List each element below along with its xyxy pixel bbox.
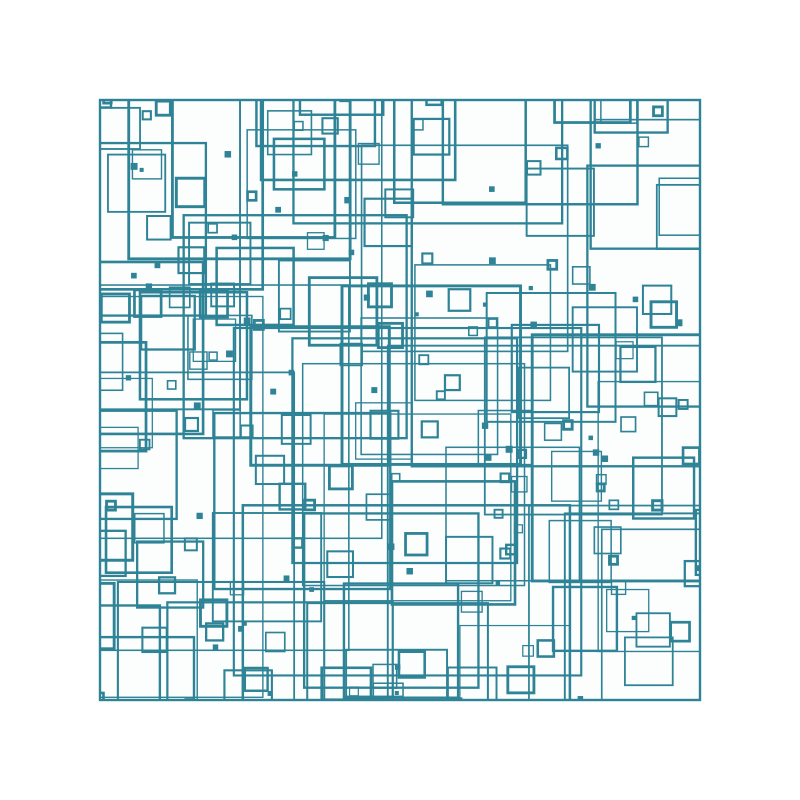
square bbox=[242, 621, 247, 626]
square bbox=[126, 375, 131, 380]
square bbox=[213, 644, 218, 649]
square bbox=[270, 389, 276, 395]
square bbox=[371, 387, 377, 393]
square bbox=[489, 186, 495, 192]
generative-artwork-canvas bbox=[0, 0, 800, 800]
square bbox=[292, 171, 297, 176]
square bbox=[588, 436, 593, 441]
square bbox=[426, 291, 433, 298]
square bbox=[197, 513, 203, 519]
square bbox=[140, 168, 144, 172]
square bbox=[530, 322, 536, 328]
square bbox=[131, 163, 138, 170]
art-stage bbox=[0, 0, 800, 800]
square bbox=[284, 575, 290, 581]
square bbox=[415, 312, 419, 316]
square bbox=[593, 449, 599, 455]
square bbox=[602, 455, 608, 461]
square bbox=[406, 568, 412, 574]
square bbox=[238, 626, 244, 632]
square bbox=[632, 616, 636, 620]
square bbox=[529, 286, 533, 290]
square bbox=[275, 207, 281, 213]
square bbox=[225, 151, 232, 158]
square bbox=[483, 303, 487, 307]
square bbox=[596, 143, 601, 148]
square bbox=[489, 257, 496, 264]
square bbox=[232, 235, 238, 241]
square bbox=[131, 273, 137, 279]
square bbox=[485, 454, 492, 461]
square bbox=[482, 423, 488, 429]
square bbox=[395, 691, 399, 695]
square bbox=[589, 284, 596, 291]
square bbox=[155, 262, 161, 268]
square bbox=[633, 297, 639, 303]
square bbox=[675, 319, 682, 326]
square bbox=[226, 351, 233, 358]
square bbox=[194, 402, 201, 409]
